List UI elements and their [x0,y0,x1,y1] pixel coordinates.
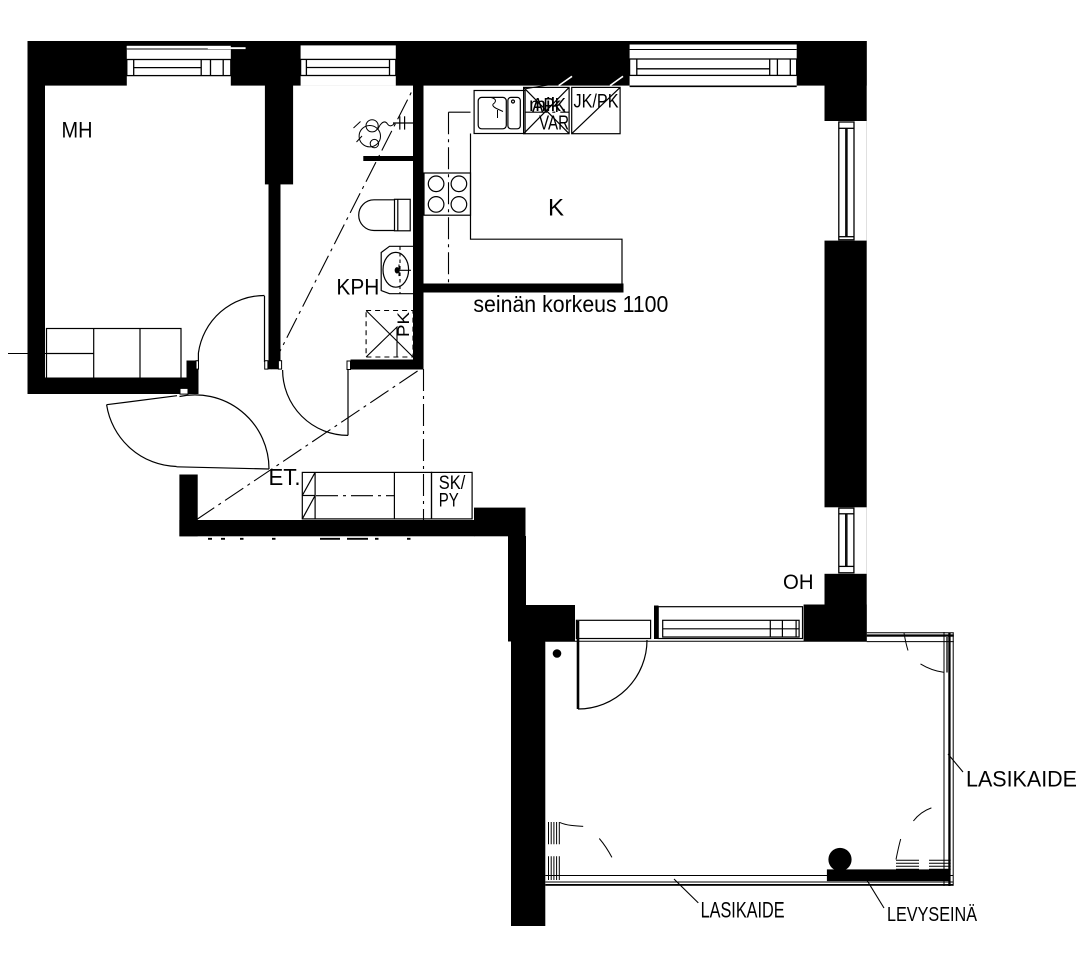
svg-text:K: K [548,195,564,222]
svg-text:MH: MH [62,118,93,143]
svg-text:ET.: ET. [269,464,301,490]
svg-text:LASIKAIDE: LASIKAIDE [701,898,785,923]
svg-text:LASIKAIDE: LASIKAIDE [966,767,1077,792]
svg-text:KPH: KPH [336,274,379,299]
svg-text:seinän korkeus 1100: seinän korkeus 1100 [473,291,668,317]
svg-text:PY: PY [439,490,459,511]
svg-text:JK/PK: JK/PK [574,91,619,113]
svg-text:PK: PK [394,311,413,337]
svg-text:VAR: VAR [539,113,569,135]
svg-text:OH: OH [783,571,814,594]
svg-text:LEVYSEINÄ: LEVYSEINÄ [887,904,978,926]
